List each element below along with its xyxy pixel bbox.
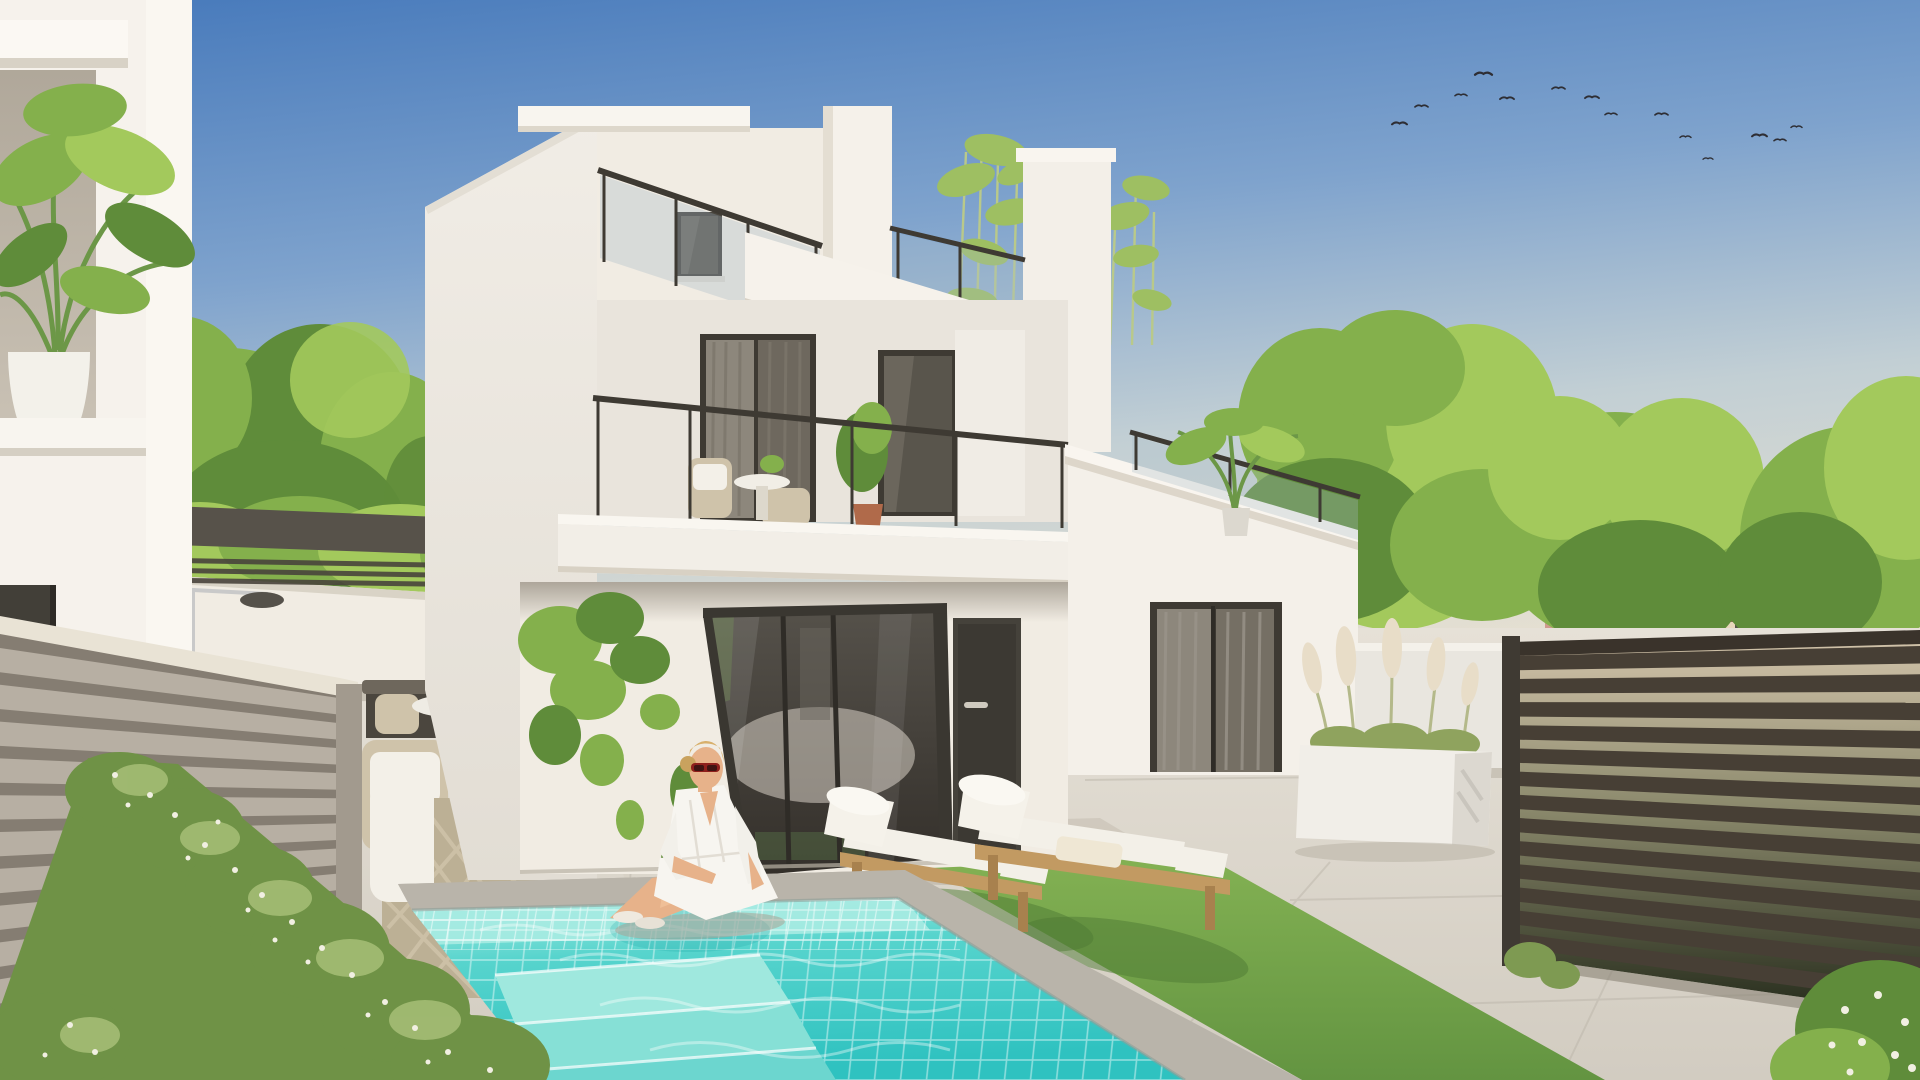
balcony (593, 300, 1068, 532)
door-handle (964, 702, 988, 708)
wing-palm-pot (1222, 508, 1250, 536)
wing-door (1150, 602, 1282, 772)
shower-head (240, 592, 284, 608)
palm-pot (8, 352, 90, 426)
fence-post (1502, 636, 1520, 966)
sandal (635, 917, 665, 929)
rendered-photo (0, 0, 1920, 1080)
scene-canvas (0, 0, 1920, 1080)
